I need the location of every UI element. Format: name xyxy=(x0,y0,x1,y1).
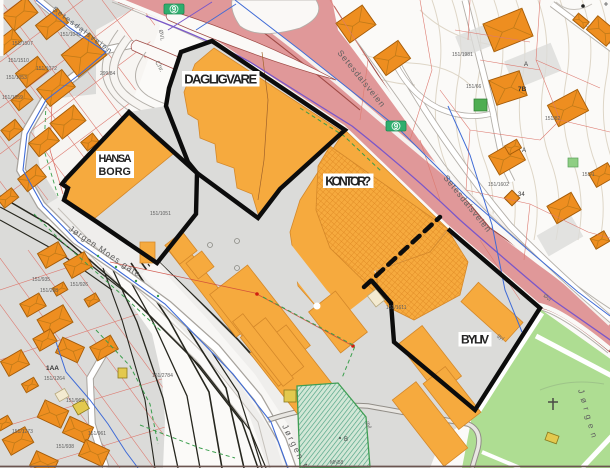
svg-text:B: B xyxy=(344,437,348,443)
svg-text:151/1510: 151/1510 xyxy=(8,58,29,64)
svg-text:151/2784: 151/2784 xyxy=(152,373,173,379)
svg-text:151/66: 151/66 xyxy=(466,84,482,90)
svg-text:299/84: 299/84 xyxy=(100,71,116,77)
svg-text:BYLIV: BYLIV xyxy=(461,333,489,347)
svg-text:151/1273: 151/1273 xyxy=(12,429,33,435)
svg-text:151/1981: 151/1981 xyxy=(452,52,473,58)
svg-text:151/82: 151/82 xyxy=(545,116,561,122)
svg-text:151/268: 151/268 xyxy=(40,288,58,294)
svg-text:MN58: MN58 xyxy=(330,460,344,466)
svg-text:151/1053: 151/1053 xyxy=(6,75,27,81)
svg-text:BORG: BORG xyxy=(99,166,131,178)
svg-text:A: A xyxy=(522,148,526,154)
svg-text:151/935: 151/935 xyxy=(32,277,50,283)
svg-text:151/1507: 151/1507 xyxy=(12,41,33,47)
svg-text:151/1059: 151/1059 xyxy=(2,95,23,101)
svg-text:151/1072: 151/1072 xyxy=(36,66,57,72)
svg-text:151/1051: 151/1051 xyxy=(150,211,171,217)
svg-text:151/1264: 151/1264 xyxy=(44,376,65,382)
svg-text:A: A xyxy=(524,62,528,68)
svg-text:151/938: 151/938 xyxy=(56,444,74,450)
svg-text:151/1: 151/1 xyxy=(582,172,595,178)
svg-text:9: 9 xyxy=(172,5,177,14)
svg-text:151/961: 151/961 xyxy=(88,431,106,437)
svg-text:151/1611: 151/1611 xyxy=(386,305,407,311)
svg-text:KONTOR?: KONTOR? xyxy=(325,174,371,188)
svg-text:34: 34 xyxy=(518,192,525,198)
svg-text:151/926: 151/926 xyxy=(70,282,88,288)
svg-text:DAGLIGVARE: DAGLIGVARE xyxy=(184,72,257,87)
svg-text:9: 9 xyxy=(394,122,399,131)
svg-text:HANSA: HANSA xyxy=(99,153,132,165)
svg-text:7B: 7B xyxy=(518,86,527,93)
svg-text:151/963: 151/963 xyxy=(66,398,84,404)
svg-text:151/1043: 151/1043 xyxy=(60,32,81,38)
svg-text:1AA: 1AA xyxy=(46,365,59,372)
svg-text:151/1602: 151/1602 xyxy=(488,182,509,188)
